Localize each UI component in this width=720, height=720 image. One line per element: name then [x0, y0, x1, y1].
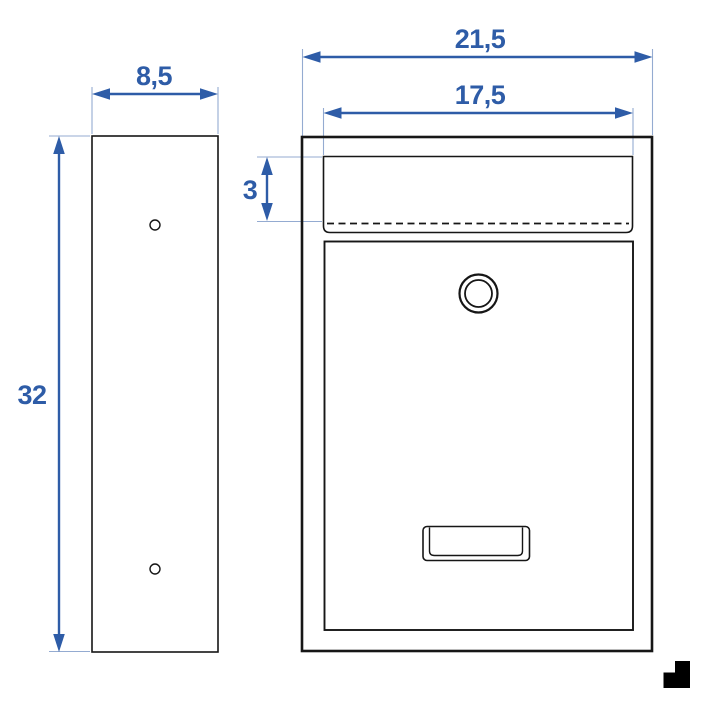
- dimension-label-slot-width: 17,5: [455, 80, 506, 110]
- door-panel: [325, 242, 634, 631]
- corner-step-logo-icon: [664, 661, 691, 688]
- logo-top-square: [675, 661, 690, 674]
- mounting-hole-bottom: [150, 564, 160, 574]
- arrowhead-left-icon: [92, 88, 110, 100]
- letter-slot-flap: [324, 157, 633, 233]
- mailbox-technical-drawing: 8,5 32 21,5 17,5 3: [0, 0, 720, 720]
- arrowhead-right-icon: [635, 51, 653, 63]
- arrowhead-left-icon: [303, 51, 321, 63]
- technical-drawing-canvas: 8,5 32 21,5 17,5 3: [0, 0, 720, 720]
- arrowhead-left-icon: [324, 107, 342, 119]
- side-view: [92, 136, 218, 652]
- dimension-label-side-height: 32: [17, 380, 46, 410]
- mounting-hole-top: [150, 220, 160, 230]
- keyhole-inner-ring: [465, 280, 492, 307]
- arrowhead-right-icon: [615, 107, 633, 119]
- arrowhead-right-icon: [200, 88, 218, 100]
- extension-lines: [49, 49, 653, 652]
- arrowhead-down-icon: [53, 634, 65, 652]
- front-view-body: [302, 137, 652, 651]
- name-plate-window: [430, 528, 523, 556]
- dimension-slot-height: 3: [243, 157, 273, 221]
- dimension-slot-width: 17,5: [324, 80, 634, 119]
- dimension-label-side-depth: 8,5: [136, 61, 173, 91]
- logo-bottom-square: [664, 673, 691, 689]
- arrowhead-up-icon: [261, 157, 273, 175]
- dimension-side-depth: 8,5: [92, 61, 218, 100]
- dimension-label-front-width: 21,5: [455, 24, 506, 54]
- front-view: [302, 137, 652, 651]
- arrowhead-up-icon: [53, 136, 65, 154]
- dimension-label-slot-height: 3: [243, 175, 258, 205]
- arrowhead-down-icon: [261, 203, 273, 221]
- dimension-front-width: 21,5: [303, 24, 653, 63]
- dimension-side-height: 32: [17, 136, 64, 652]
